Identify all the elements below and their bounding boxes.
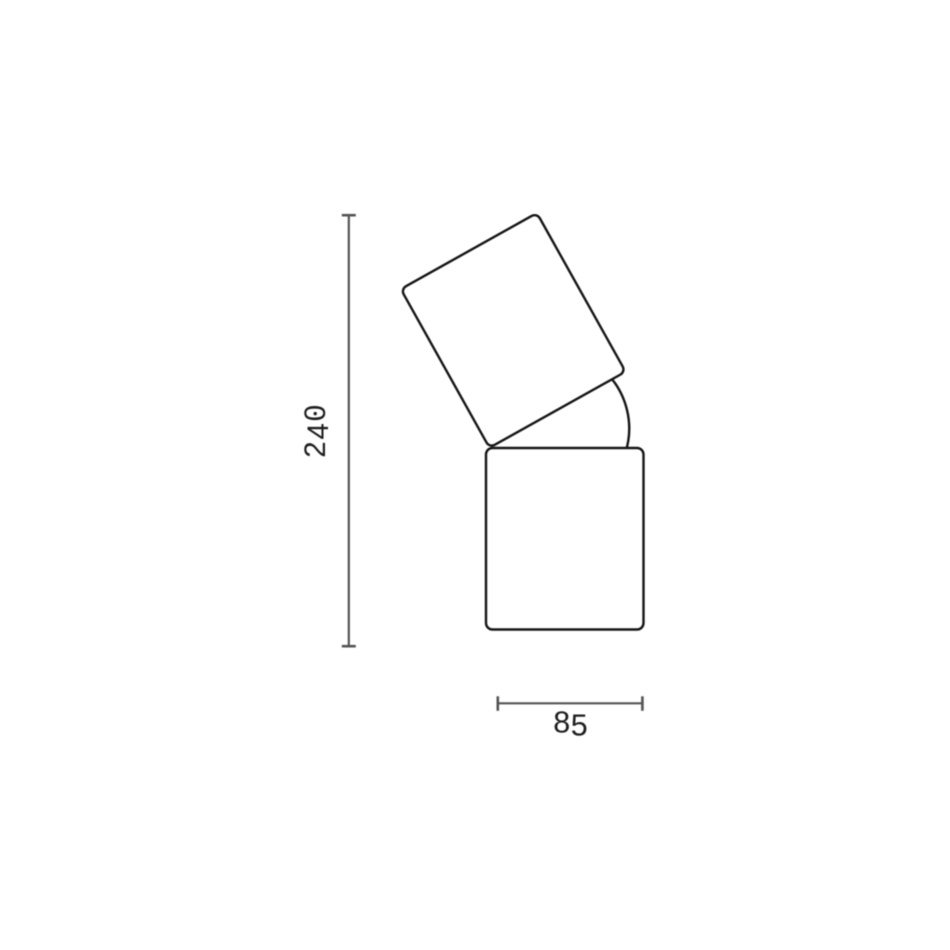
svg-text:85: 85 [553, 705, 588, 742]
svg-text:240: 240 [299, 403, 335, 458]
